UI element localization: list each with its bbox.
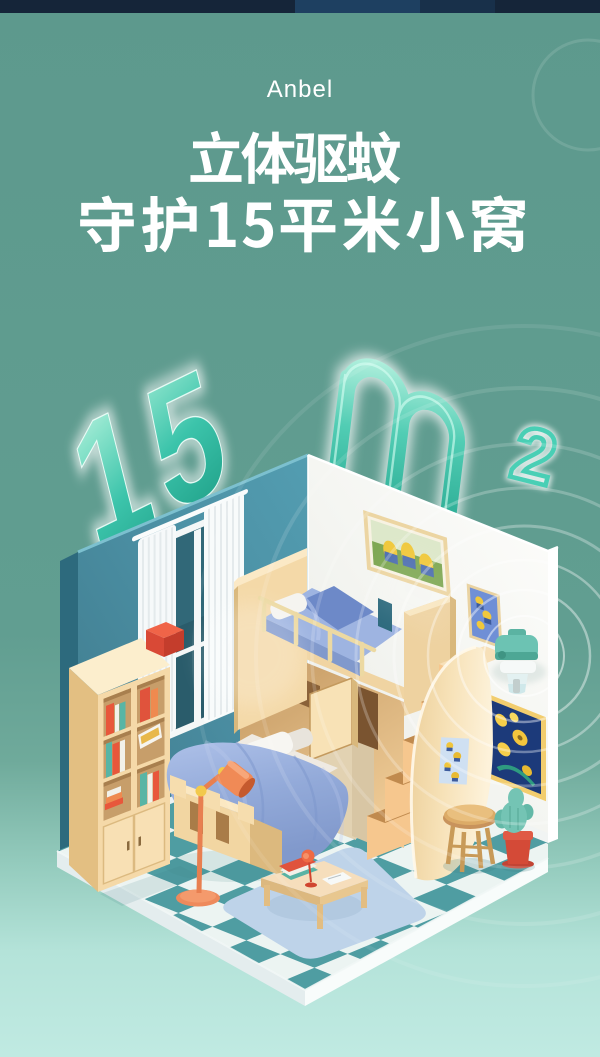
- svg-text:Anbel: Anbel: [267, 76, 333, 103]
